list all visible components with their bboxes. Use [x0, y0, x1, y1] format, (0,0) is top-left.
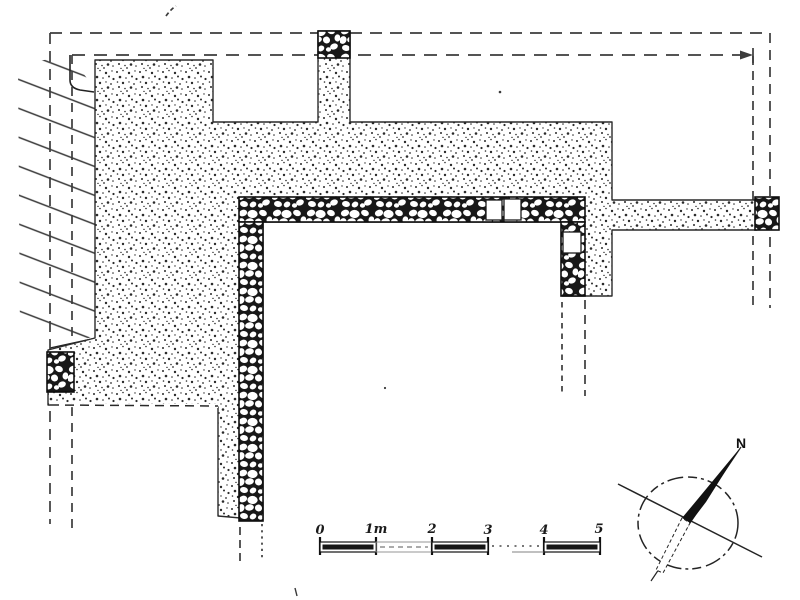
site-plan-drawing: 0 1m 2 3 4 5 N: [0, 0, 800, 600]
north-needle-blade: [682, 448, 740, 523]
stippled-platform: [48, 31, 757, 520]
north-spur-wall-head: [318, 31, 350, 58]
scale-segment-core: [547, 545, 598, 550]
threshold-block-1: [486, 200, 502, 220]
wall-north: [239, 197, 585, 222]
limit-arrowhead: [740, 51, 753, 60]
hatched-baulk: [0, 40, 110, 360]
compass-rose: N: [618, 435, 762, 581]
scale-bar: 0 1m 2 3 4 5: [315, 522, 603, 555]
site-plan-page: 0 1m 2 3 4 5 N: [0, 0, 800, 600]
corner-sketch-fragment: [166, 6, 176, 16]
scale-labels: 0 1m 2 3 4 5: [315, 522, 603, 538]
north-label: N: [736, 435, 746, 451]
threshold-block-3: [563, 232, 581, 253]
scale-segment-core: [435, 545, 486, 550]
east-spur-wall-end: [755, 197, 779, 230]
scale-label: 0: [315, 523, 324, 538]
south-needle-tail: [656, 518, 690, 573]
scale-label: 5: [594, 522, 603, 537]
rubble-patch-southwest: [47, 352, 74, 392]
scale-label: 4: [539, 523, 548, 538]
wall-west: [239, 222, 263, 521]
scale-label: 1m: [365, 522, 388, 537]
scale-label: 2: [426, 522, 436, 537]
scale-label: 3: [483, 523, 492, 538]
scale-segment-core: [323, 545, 374, 550]
threshold-block-2: [504, 199, 521, 220]
